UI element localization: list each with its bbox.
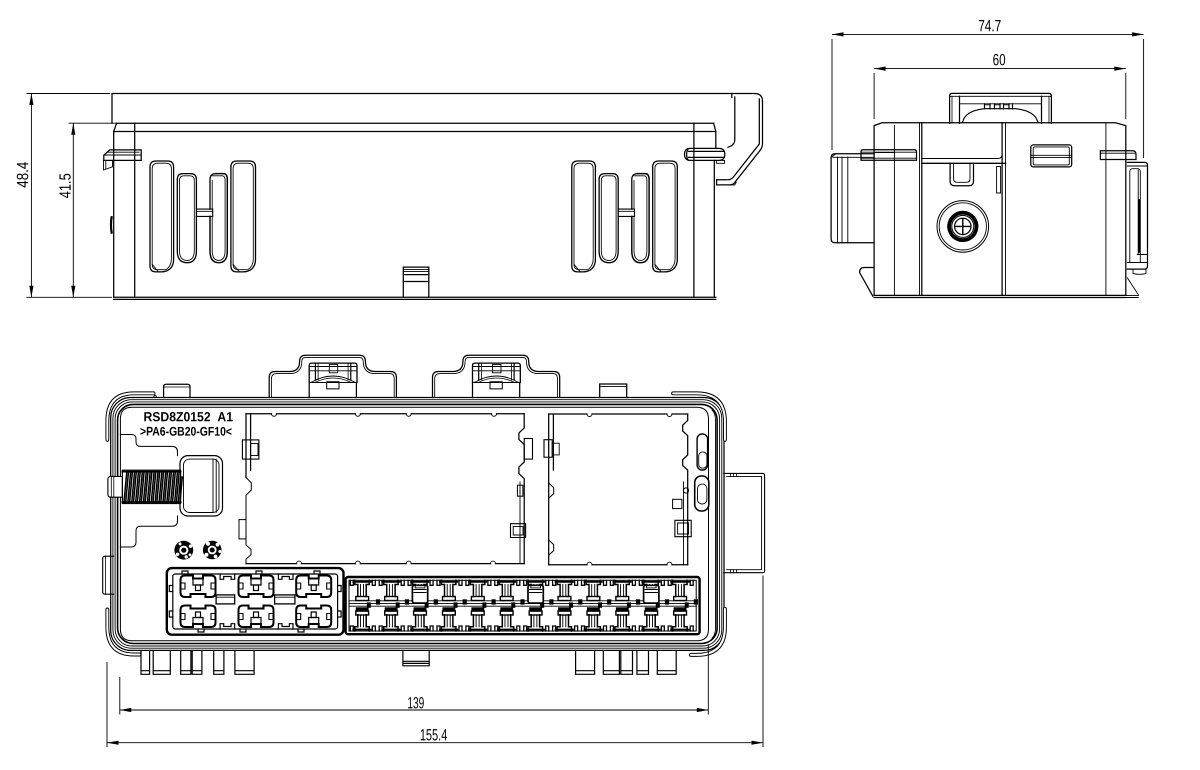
svg-text:48.4: 48.4 — [14, 162, 32, 188]
svg-text:139: 139 — [407, 694, 424, 712]
svg-text:74.7: 74.7 — [978, 17, 1001, 35]
svg-text:155.4: 155.4 — [420, 726, 448, 744]
svg-text:RSD8Z0152 A1: RSD8Z0152 A1 — [143, 409, 233, 424]
svg-text:41.5: 41.5 — [57, 173, 75, 198]
svg-text:>PA6-GB20-GF10<: >PA6-GB20-GF10< — [140, 425, 232, 439]
svg-text:60: 60 — [993, 51, 1006, 69]
